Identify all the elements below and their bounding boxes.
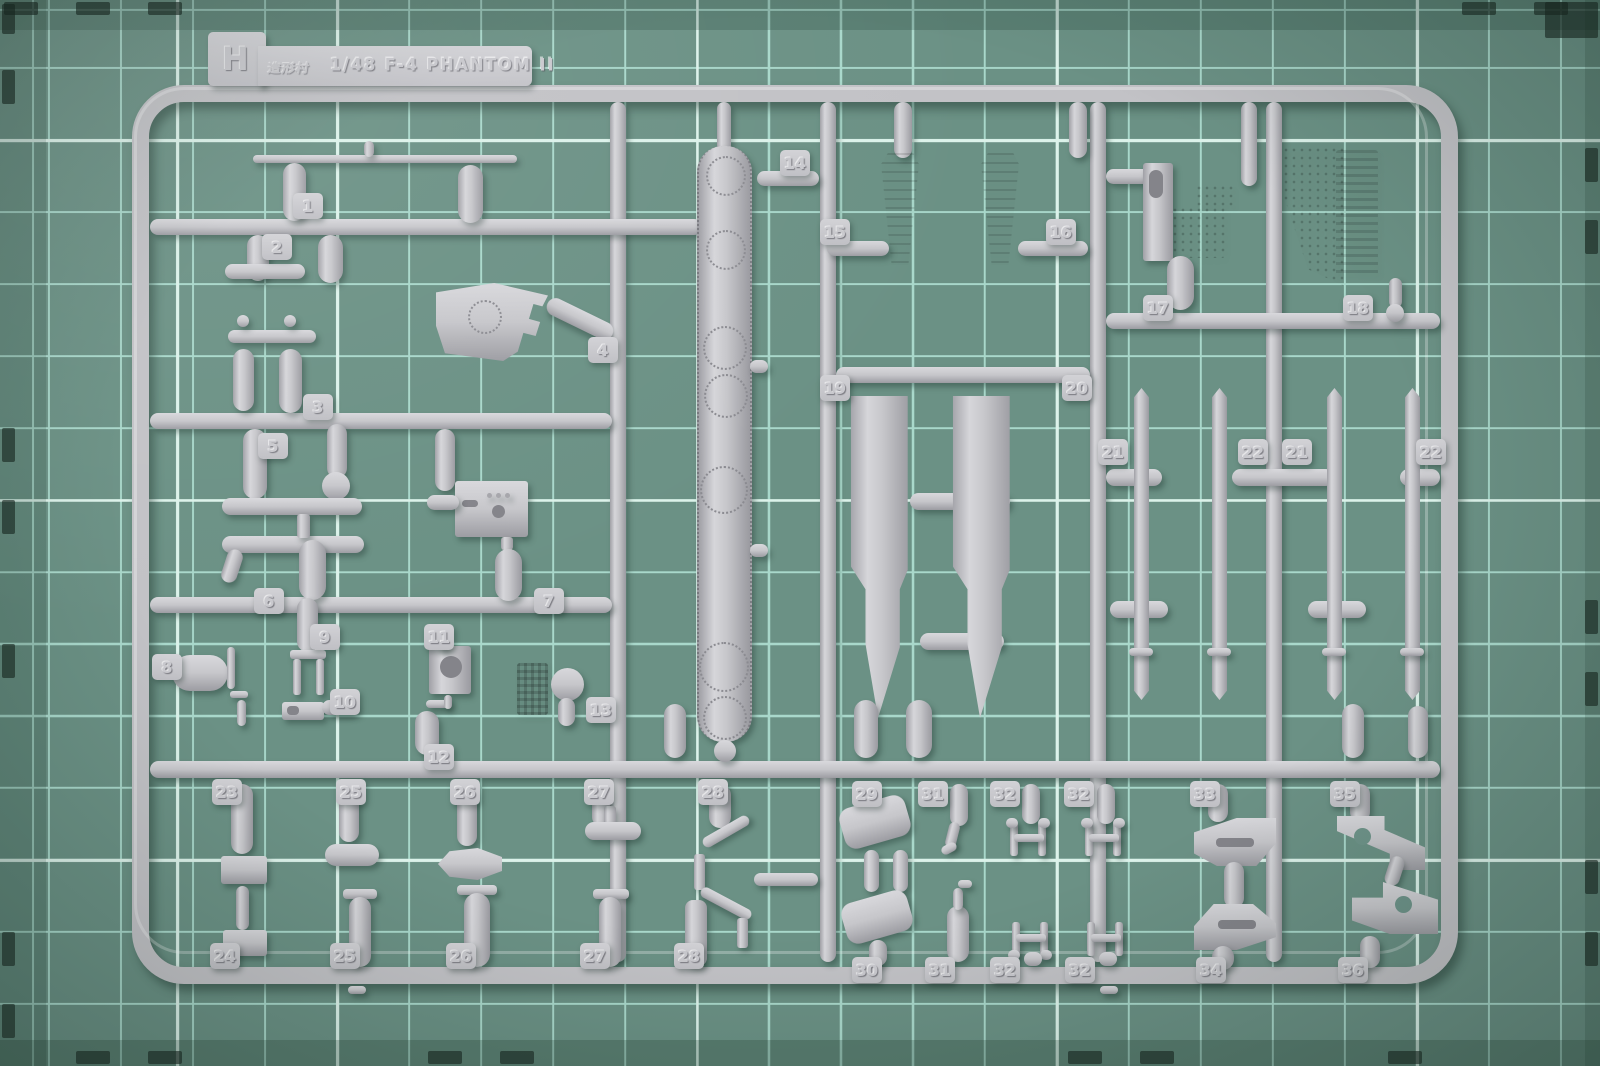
part-number-tag: 27 xyxy=(580,943,610,969)
mat-ruler-mark xyxy=(1585,932,1598,966)
mat-ruler-mark xyxy=(1585,672,1598,706)
sprue-part xyxy=(1099,952,1117,966)
sprue-part xyxy=(318,235,343,283)
sprue-part xyxy=(237,315,249,327)
part-number-tag: 23 xyxy=(212,779,242,805)
mat-ruler-mark xyxy=(428,1051,462,1064)
part-number-tag: 6 xyxy=(254,588,284,614)
mat-ruler-mark xyxy=(2,4,15,34)
sprue-part xyxy=(1100,986,1118,994)
sprue-part xyxy=(458,165,483,223)
part-number-tag: 30 xyxy=(852,957,882,983)
sprue-runner xyxy=(150,761,1440,778)
part-number-tag: 13 xyxy=(586,697,616,723)
part-number-tag: 5 xyxy=(258,433,288,459)
sprue-part xyxy=(284,315,296,327)
sprue-part xyxy=(950,784,968,826)
sprue-part xyxy=(750,360,768,373)
part-number-tag: 14 xyxy=(780,150,810,176)
sprue-part xyxy=(750,544,768,557)
sprue-part xyxy=(290,650,326,659)
sprue-part xyxy=(1322,648,1346,656)
sprue-part-recess xyxy=(462,500,478,507)
sprue-part xyxy=(694,854,705,890)
mat-ruler-mark xyxy=(2,644,15,678)
mat-ruler-mark xyxy=(500,1051,534,1064)
sprue-part-recess xyxy=(440,656,462,678)
part-number-tag: 25 xyxy=(330,943,360,969)
photo-model-kit-sprue: H 造形村 1/48 F-4 PHANTOM II 12345678910111… xyxy=(0,0,1600,1066)
part-number-tag: 25 xyxy=(336,779,366,805)
part-number-tag: 18 xyxy=(1343,295,1373,321)
sprue-part xyxy=(348,986,366,994)
sprue-part xyxy=(958,880,972,888)
sprue-part xyxy=(1006,818,1018,828)
part-number-tag: 17 xyxy=(1143,295,1173,321)
sprue-part xyxy=(947,906,969,962)
sprue-part xyxy=(253,155,517,163)
sprue-part xyxy=(737,918,748,948)
sprue-part xyxy=(1091,934,1121,942)
sprue-part xyxy=(228,330,316,343)
mat-ruler-mark xyxy=(1068,1051,1102,1064)
mat-ruler-mark xyxy=(76,2,110,15)
part-number-tag: 32 xyxy=(990,957,1020,983)
sprue-part xyxy=(221,856,267,884)
mat-ruler-mark xyxy=(2,70,15,104)
sprue-part xyxy=(664,704,686,758)
part-number-tag: 11 xyxy=(424,624,454,650)
sprue-part xyxy=(279,349,302,413)
sprue-part xyxy=(236,886,249,930)
mat-ruler-mark xyxy=(1585,600,1598,634)
sprue-part xyxy=(1171,206,1225,258)
sprue-part xyxy=(1408,706,1428,758)
part-number-tag: 19 xyxy=(820,375,850,401)
sprue-part-detail xyxy=(703,326,747,370)
part-number-tag: 1 xyxy=(293,193,323,219)
sprue-part xyxy=(505,493,510,498)
part-number-tag: 21 xyxy=(1282,439,1312,465)
sprue-runner xyxy=(717,102,731,152)
sprue-part xyxy=(1089,834,1119,842)
sprue-part xyxy=(1016,934,1046,942)
sprue-part xyxy=(299,540,326,600)
part-number-tag: 34 xyxy=(1196,957,1226,983)
sprue-part xyxy=(893,850,908,892)
part-number-tag: 15 xyxy=(820,219,850,245)
sprue-part xyxy=(435,429,455,491)
part-number-tag: 26 xyxy=(450,779,480,805)
part-number-tag: 31 xyxy=(925,957,955,983)
kit-title: 1/48 F-4 PHANTOM II xyxy=(330,55,555,75)
sprue-part xyxy=(230,691,248,698)
part-number-tag: 26 xyxy=(446,943,476,969)
part-number-tag: 10 xyxy=(330,689,360,715)
part-number-tag: 36 xyxy=(1338,957,1368,983)
part-number-tag: 32 xyxy=(1064,781,1094,807)
sprue-part xyxy=(558,698,575,726)
sprue-runner-h: H 造形村 1/48 F-4 PHANTOM II 12345678910111… xyxy=(0,0,1600,1066)
part-number-tag: 20 xyxy=(1062,375,1092,401)
sprue-part-detail xyxy=(706,156,746,196)
sprue-part xyxy=(517,663,548,715)
sprue-part xyxy=(1081,818,1093,828)
sprue-part xyxy=(1386,304,1404,322)
part-number-tag: 32 xyxy=(1065,957,1095,983)
sprue-part xyxy=(1400,648,1424,656)
mat-ruler-mark xyxy=(1140,1051,1174,1064)
sprue-part-detail xyxy=(468,300,502,334)
sprue-runner xyxy=(1232,469,1334,486)
part-number-tag: 33 xyxy=(1190,781,1220,807)
sprue-part xyxy=(225,264,305,279)
sprue-part xyxy=(227,647,235,689)
mat-ruler-mark xyxy=(2,932,15,966)
sprue-part xyxy=(293,659,301,695)
sprue-part xyxy=(316,659,324,695)
sprue-part-detail xyxy=(700,466,748,514)
sprue-runner xyxy=(1241,102,1257,186)
sprue-part xyxy=(325,844,379,866)
sprue-part xyxy=(1022,784,1040,824)
part-number-tag: 35 xyxy=(1330,781,1360,807)
sprue-part-recess xyxy=(287,706,299,715)
part-number-tag: 9 xyxy=(310,624,340,650)
sprue-part xyxy=(327,424,347,478)
sprue-part xyxy=(237,700,246,726)
mat-ruler-mark xyxy=(76,1051,110,1064)
part-number-tag: 4 xyxy=(588,337,618,363)
sprue-part-detail xyxy=(704,374,748,418)
part-number-tag: 24 xyxy=(210,943,240,969)
sprue-part xyxy=(714,740,736,762)
part-number-tag: 27 xyxy=(584,779,614,805)
sprue-part xyxy=(297,514,310,538)
part-number-tag: 22 xyxy=(1416,439,1446,465)
sprue-part xyxy=(427,495,459,510)
sprue-runner xyxy=(1069,102,1087,158)
sprue-part xyxy=(222,498,362,515)
mat-ruler-mark xyxy=(1585,860,1598,894)
sprue-part xyxy=(1113,818,1125,828)
sprue-part-detail xyxy=(699,642,749,692)
mat-ruler-mark xyxy=(1545,2,1598,38)
sprue-part-recess xyxy=(1218,920,1256,929)
mat-ruler-mark xyxy=(148,1051,182,1064)
sprue-part xyxy=(585,822,641,840)
sprue-part xyxy=(322,472,350,500)
sprue-runner xyxy=(150,413,612,429)
sprue-part xyxy=(1207,648,1231,656)
part-number-tag: 31 xyxy=(918,781,948,807)
sprue-part xyxy=(854,700,878,758)
sprue-part-hole xyxy=(1395,896,1412,913)
sprue-part-recess xyxy=(1149,170,1163,198)
mat-ruler-mark xyxy=(1462,2,1496,15)
sprue-part xyxy=(551,668,584,701)
mat-ruler-mark xyxy=(1585,148,1598,182)
part-number-tag: 2 xyxy=(262,234,292,260)
sprue-part xyxy=(1342,704,1364,758)
part-number-tag: 32 xyxy=(990,781,1020,807)
sprue-part xyxy=(906,700,932,758)
part-number-tag: 22 xyxy=(1238,439,1268,465)
sprue-part-detail xyxy=(706,230,746,270)
part-number-tag: 28 xyxy=(674,943,704,969)
sprue-part xyxy=(222,536,364,553)
part-number-tag: 29 xyxy=(852,781,882,807)
part-number-tag: 8 xyxy=(152,654,182,680)
sprue-letter: H xyxy=(222,40,249,78)
sprue-part xyxy=(444,695,452,709)
sprue-part xyxy=(953,888,963,910)
sprue-part xyxy=(364,141,374,157)
sprue-part xyxy=(1129,648,1153,656)
sprue-part xyxy=(487,493,492,498)
sprue-part-detail xyxy=(703,696,747,740)
sprue-part-recess xyxy=(1216,838,1254,847)
sprue-part xyxy=(495,549,522,601)
mat-ruler-mark xyxy=(2,500,15,534)
mat-ruler-mark xyxy=(2,1004,15,1038)
part-number-tag: 12 xyxy=(424,744,454,770)
part-number-tag: 16 xyxy=(1046,219,1076,245)
part-number-tag: 7 xyxy=(534,588,564,614)
sprue-runner xyxy=(836,367,1090,383)
part-number-tag: 3 xyxy=(303,394,333,420)
sprue-runner xyxy=(754,873,818,886)
sprue-part xyxy=(233,349,254,411)
brand-logo: 造形村 xyxy=(267,59,311,76)
part-number-tag: 21 xyxy=(1098,439,1128,465)
sprue-part-recess xyxy=(492,505,505,518)
sprue-part xyxy=(1195,184,1237,208)
mat-ruler-mark xyxy=(1388,1051,1422,1064)
sprue-runner xyxy=(150,219,702,235)
sprue-part xyxy=(1097,784,1115,824)
sprue-part xyxy=(1336,150,1378,276)
mat-ruler-mark xyxy=(1585,220,1598,254)
sprue-part xyxy=(1024,952,1042,966)
sprue-part xyxy=(1224,862,1244,908)
sprue-part xyxy=(864,850,879,892)
sprue-part xyxy=(1038,818,1050,828)
sprue-part-hole xyxy=(1354,828,1371,845)
sprue-part xyxy=(1014,834,1044,842)
mat-ruler-mark xyxy=(2,428,15,462)
sprue-runner xyxy=(894,102,912,158)
part-number-tag: 28 xyxy=(698,779,728,805)
mat-ruler-mark xyxy=(148,2,182,15)
sprue-part xyxy=(496,493,501,498)
